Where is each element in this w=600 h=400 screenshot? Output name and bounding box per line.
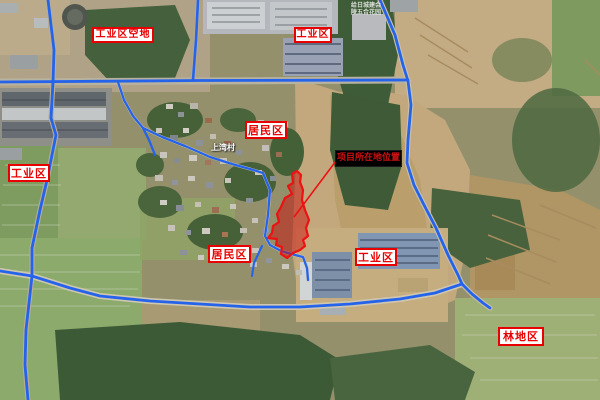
basemap-poi-text-line2: 陵五合花园 (351, 9, 381, 16)
label-industrial-vacant-zone: 工业区空地 (92, 27, 154, 43)
label-industrial-zone-bottom: 工业区 (355, 248, 397, 266)
label-forest-zone: 林地区 (498, 327, 544, 346)
label-residential-zone-top: 居民区 (245, 121, 287, 139)
label-residential-zone-bottom: 居民区 (208, 245, 251, 263)
basemap-poi-text-line1: 给日城建会 (351, 2, 381, 9)
project-site-polygon (268, 171, 309, 258)
label-industrial-zone-top: 工业区 (294, 27, 332, 43)
basemap-village-name: 上湾村 (211, 144, 235, 152)
satellite-map-canvas[interactable]: 工业区空地 工业区 工业区 居民区 居民区 工业区 林地区 项目所在地位置 上湾… (0, 0, 600, 400)
label-industrial-zone-left: 工业区 (8, 164, 50, 182)
label-project-site-location: 项目所在地位置 (335, 150, 402, 167)
basemap-poi-text: 给日城建会 陵五合花园 (351, 2, 381, 16)
